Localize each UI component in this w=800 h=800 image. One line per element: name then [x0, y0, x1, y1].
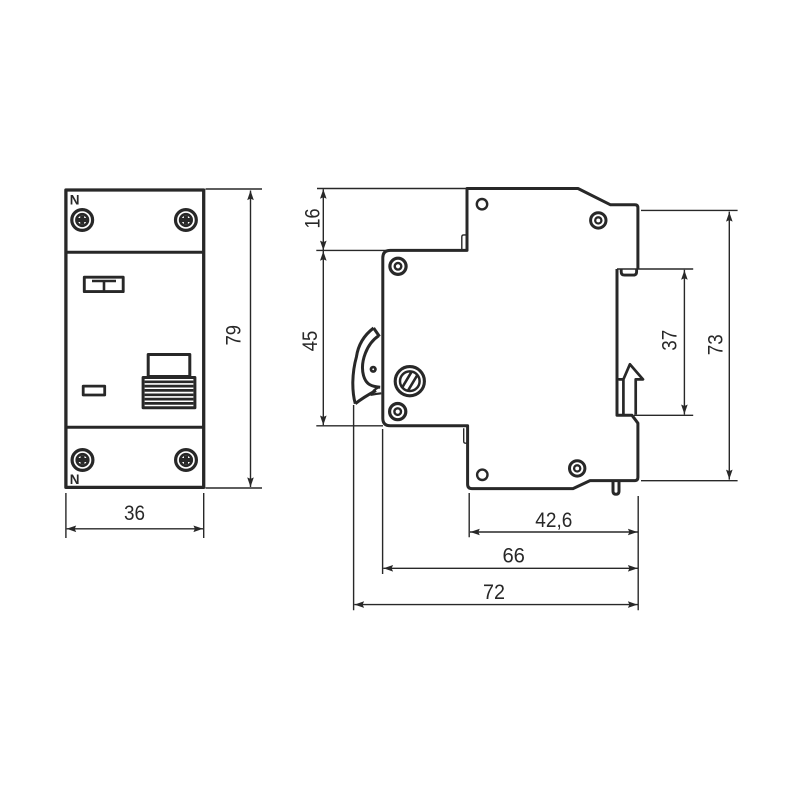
svg-text:45: 45 — [299, 331, 322, 352]
svg-text:N: N — [70, 193, 80, 208]
svg-text:36: 36 — [124, 502, 145, 525]
svg-text:N: N — [70, 472, 80, 487]
svg-text:16: 16 — [301, 209, 324, 229]
svg-text:72: 72 — [483, 581, 505, 604]
svg-text:73: 73 — [704, 334, 727, 355]
svg-text:42,6: 42,6 — [535, 509, 572, 532]
svg-text:66: 66 — [502, 545, 525, 568]
svg-text:79: 79 — [223, 325, 246, 346]
svg-text:37: 37 — [658, 330, 681, 351]
